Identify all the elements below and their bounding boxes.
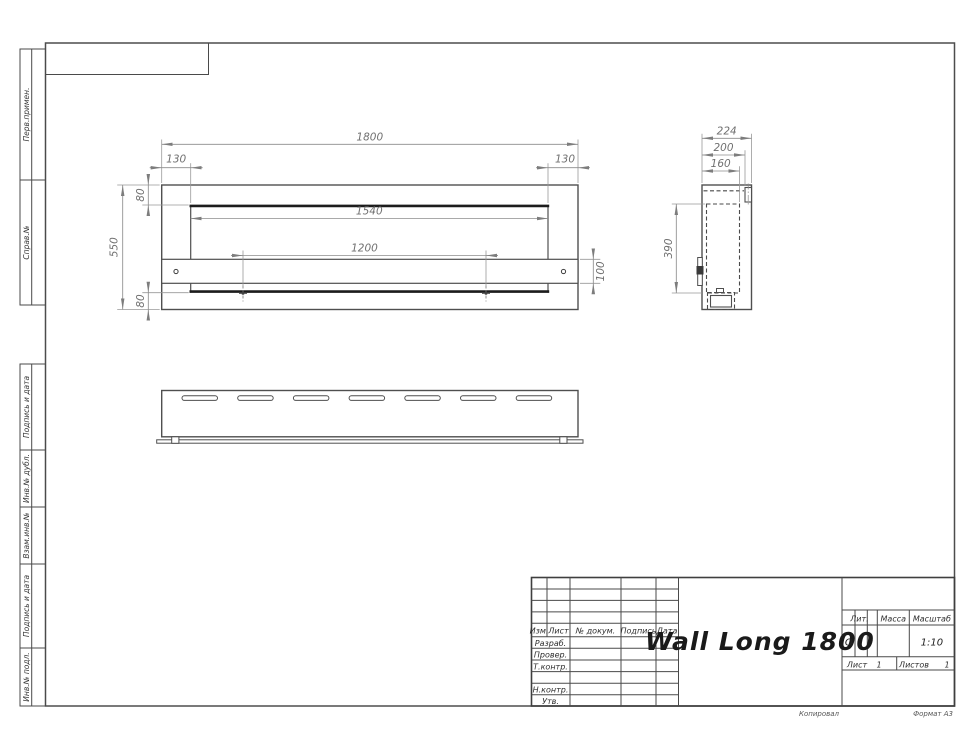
side-view <box>697 184 752 310</box>
role-tkontr: Т.контр. <box>533 662 568 671</box>
vent-slot <box>293 396 329 401</box>
sidebar-stamp: Подпись и дата <box>20 364 46 450</box>
dim-inner-depth: 160 <box>711 158 731 170</box>
footer-labels: Копировал Формат А3 <box>799 710 953 718</box>
vent-slot <box>238 396 274 401</box>
mounting-hole-left <box>174 269 178 273</box>
sidebar-label: Перв.примен. <box>22 88 31 142</box>
sidebar-label: Справ.№ <box>22 225 31 259</box>
dim-offset-right: 130 <box>555 154 575 166</box>
mass-label: Масса <box>881 615 907 624</box>
lit-value: О <box>845 638 853 649</box>
vent-slot <box>516 396 552 401</box>
frame-topleft-box <box>46 43 209 75</box>
col-doc: № докум. <box>575 627 615 636</box>
scale-label: Масштаб <box>913 615 951 624</box>
vent-slot <box>461 396 497 401</box>
side-burner-box <box>711 296 732 308</box>
drawing-canvas: Перв.примен. Справ.№ Подпись и дата Инв.… <box>0 0 970 749</box>
title-block: Изм. Лист № докум. Подпись Дата Разраб. … <box>530 578 955 707</box>
scale-value: 1:10 <box>921 638 943 649</box>
sidebar-stamp: Инв.№ дубл. <box>20 450 46 507</box>
bottom-view <box>157 391 583 444</box>
mounting-bracket-bar <box>162 259 578 283</box>
side-bracket-block <box>697 266 704 275</box>
sidebar-stamp: Взам.инв.№ <box>20 507 46 564</box>
dim-inner-height: 390 <box>663 238 675 258</box>
role-nkontr: Н.контр. <box>533 686 569 695</box>
copied-label: Копировал <box>799 710 840 718</box>
dim-mount-spacing: 1200 <box>351 243 378 255</box>
vent-slot <box>405 396 441 401</box>
dim-bottom-margin: 80 <box>135 294 147 308</box>
dim-bracket-height: 100 <box>595 261 607 281</box>
side-burner-nub <box>717 289 724 293</box>
format-label: Формат А3 <box>913 710 953 718</box>
sidebar-stamp: Справ.№ <box>20 180 46 305</box>
sidebar-label: Подпись и дата <box>22 575 31 638</box>
drawing-frame <box>46 43 955 706</box>
col-list: Лист <box>547 627 569 636</box>
sidebar-label: Инв.№ подл. <box>22 652 31 701</box>
vent-slot <box>349 396 385 401</box>
lit-label: Лит. <box>849 615 868 624</box>
dim-overall-width: 1800 <box>356 131 383 143</box>
sidebar-stamp: Перв.примен. <box>20 49 46 180</box>
sidebar-stamps: Перв.примен. Справ.№ Подпись и дата Инв.… <box>20 49 46 706</box>
sheet-label: Лист <box>846 661 868 670</box>
dim-depth: 224 <box>717 125 737 137</box>
plate-tab-right <box>560 437 567 444</box>
plate-tab-left <box>172 437 179 444</box>
dim-overall-height: 550 <box>109 237 121 257</box>
dim-top-margin: 80 <box>135 188 147 202</box>
sheets-label: Листов <box>898 661 929 670</box>
col-izm: Изм. <box>530 627 549 636</box>
sidebar-stamp: Подпись и дата <box>20 564 46 648</box>
sheet-value: 1 <box>876 661 881 670</box>
sheets-value: 1 <box>944 661 949 670</box>
dim-opening-width: 1540 <box>356 206 383 218</box>
doc-title: Wall Long 1800 <box>645 627 875 656</box>
sidebar-label: Подпись и дата <box>22 376 31 439</box>
role-razrab: Разраб. <box>535 639 566 648</box>
role-prover: Провер. <box>534 651 567 660</box>
sidebar-stamp: Инв.№ подл. <box>20 648 46 706</box>
drawing-sheet: Перв.примен. Справ.№ Подпись и дата Инв.… <box>0 0 970 749</box>
role-utv: Утв. <box>542 697 559 706</box>
vent-slot <box>182 396 218 401</box>
dim-offset-left: 130 <box>166 154 186 166</box>
sidebar-label: Инв.№ дубл. <box>22 454 31 503</box>
sidebar-label: Взам.инв.№ <box>22 512 31 558</box>
dim-mid-depth: 200 <box>713 142 733 154</box>
mounting-hole-right <box>561 269 565 273</box>
base-plate <box>157 440 583 443</box>
